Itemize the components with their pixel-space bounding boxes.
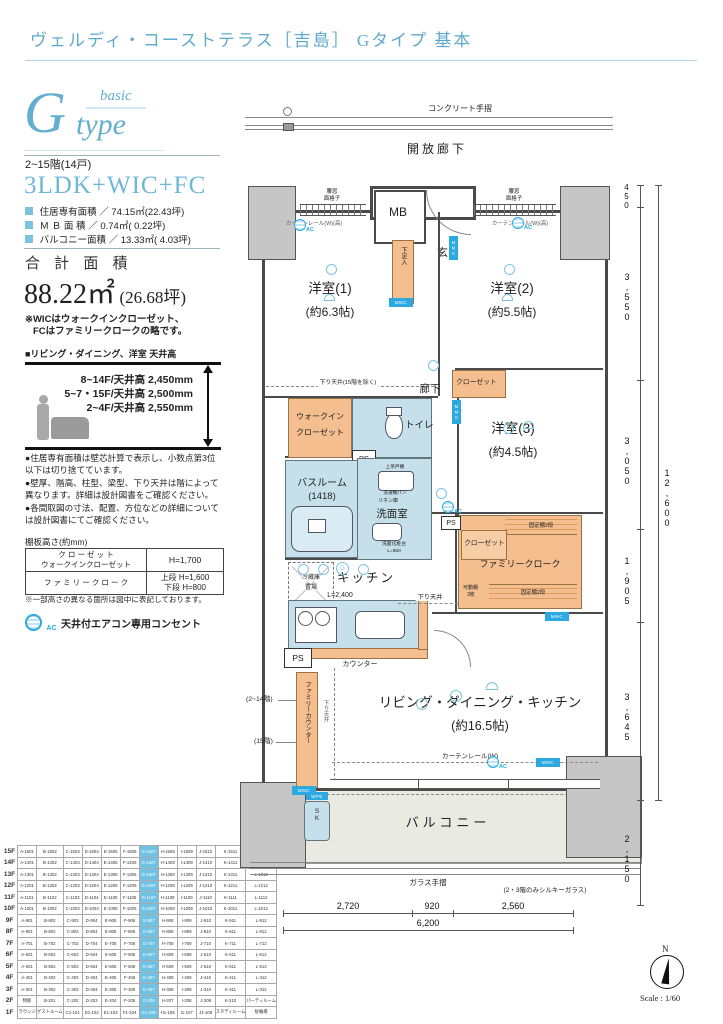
logo-type: type (76, 108, 126, 142)
unit-cell: I-1309 (177, 869, 196, 881)
unit-cell: K-711 (215, 938, 246, 950)
floor-label: 6F (2, 949, 18, 961)
unit-row: 15FA-1501B-1502C-1503D-1504E-1505F-1506G… (2, 846, 277, 858)
wic-note-line1: ※WICはウォークインクローゼット、 (25, 315, 184, 325)
fixed-shelf-bottom-label: 固定棚2段 (521, 591, 546, 596)
unit-cell: I-1509 (177, 846, 196, 858)
unit-cell: L-812 (246, 926, 277, 938)
area-row-2: Ｍ Ｂ 面 積 ／ 0.74㎡( 0.22坪) (25, 218, 165, 232)
unit-cell: ゲストルーム (37, 1007, 64, 1019)
toilet-label: トイレ (405, 421, 434, 431)
dim-line-bottom (283, 913, 574, 914)
unit-cell: L-1112 (246, 892, 277, 904)
arrow-up-icon (203, 365, 213, 373)
unit-cell: A-1201 (18, 880, 37, 892)
unit-cell: L-512 (246, 961, 277, 973)
ps-label: PS (446, 520, 455, 527)
unit-cell: G1-105 (139, 1007, 158, 1019)
ceiling-heading: ■リビング・ダイニング、洋室 天井高 (25, 350, 176, 359)
unit-cell: C-1003 (63, 903, 82, 915)
unit-cell: B-1302 (37, 869, 64, 881)
koshimado-label: 腰窓 (508, 190, 519, 196)
unit-cell: D-504 (82, 961, 101, 973)
wic-label-line2: クローゼット (296, 429, 344, 437)
unit-cell: G-907 (139, 915, 158, 927)
concrete-rail-line (245, 117, 613, 118)
glass-rail-line (250, 862, 640, 863)
unit-cell: B-502 (37, 961, 64, 973)
ldk-label: リビング・ダイニング・キッチン (379, 696, 582, 710)
unit-cell: A-901 (18, 915, 37, 927)
unit-cell: D-404 (82, 972, 101, 984)
unit-cell: H-408 (158, 972, 177, 984)
unit-cell: F-506 (120, 961, 139, 973)
shelf-caption: 棚板高さ(約mm) (25, 538, 87, 547)
closet-room3: クローゼット (461, 530, 507, 560)
ps-box: PS (441, 516, 461, 530)
scale-label: Scale : 1/60 (640, 994, 680, 1003)
unit-cell: D-804 (82, 926, 101, 938)
family-counter: ファミリーカウンター (296, 672, 318, 788)
ac-outlet: AC (294, 218, 314, 236)
family-counter-note2: (15階) (254, 739, 273, 746)
mmc-label: MMC (395, 300, 407, 305)
floor-label: 7F (2, 938, 18, 950)
mmc-label: MMC (454, 404, 459, 421)
dim-tick (655, 800, 662, 801)
unit-cell: H-808 (158, 926, 177, 938)
mmc-tag: MMC (536, 758, 560, 767)
unit-cell: C-503 (63, 961, 82, 973)
unit-cell: D-1104 (82, 892, 101, 904)
unit-cell: H-708 (158, 938, 177, 950)
unit-cell: E-1405 (101, 857, 120, 869)
unit-cell: H-207 (158, 995, 177, 1007)
unit-cell: E-905 (101, 915, 120, 927)
lowered-ceiling-note: 下り天井(15階を除く) (318, 381, 379, 387)
interior-wall (438, 212, 440, 396)
unit-row: 8FA-801B-802C-803D-804E-805F-806G-807H-8… (2, 926, 277, 938)
dim-tick (637, 207, 644, 208)
dim-right-3: 3,050 (622, 436, 632, 486)
shelf-label: ク ロ ー ゼ ッ ト (27, 550, 145, 560)
concrete-rail-label: コンクリート手摺 (428, 105, 492, 113)
ac-outlet-icon (25, 614, 42, 631)
total-area-label: 合 計 面 積 (25, 256, 133, 271)
unit-cell: G-307 (139, 984, 158, 996)
sink-icon (355, 611, 405, 639)
ac-outlet-icon (512, 217, 524, 229)
unit-row: 2F物販B-201C-202D-203E-204F-205G-206H-207I… (2, 995, 277, 1007)
unit-cell: C-903 (63, 915, 82, 927)
unit-cell: F-1306 (120, 869, 139, 881)
unit-cell: B-1102 (37, 892, 64, 904)
unit-cell: H-1308 (158, 869, 177, 881)
dim-tick (573, 910, 574, 917)
mmc-label: MMC (551, 614, 563, 619)
dim-right-total: 12,600 (662, 468, 672, 528)
g-outlet-label: G (340, 566, 345, 572)
burner-icon (315, 611, 330, 626)
floor-label: 1F (2, 1007, 18, 1019)
shelf-value: 下段 H=800 (148, 583, 222, 593)
unit-cell: I-1409 (177, 857, 196, 869)
note-3: ●各間取図の寸法、配置、方位などの詳細については設計図書にてご確認ください。 (25, 502, 223, 526)
slop-sink-label: SK (313, 808, 320, 822)
unit-cell: J-209 (196, 995, 215, 1007)
unit-cell: B-1402 (37, 857, 64, 869)
unit-cell: J-1410 (196, 857, 215, 869)
glass-rail-line (250, 868, 640, 869)
unit-cell: A-501 (18, 961, 37, 973)
lowered-ceiling-dashed-vertical (334, 668, 335, 786)
unit-cell: B-702 (37, 938, 64, 950)
window-grille-left (300, 204, 366, 216)
unit-row: 10FA-1001B-1002C-1003D-1004E-1005F-1006G… (2, 903, 277, 915)
floor-label: 11F (2, 892, 18, 904)
unit-cell: J-710 (196, 938, 215, 950)
dim-tick (453, 910, 454, 917)
person-silhouette-icon (39, 395, 48, 404)
area-row-1: 住居専有面積 ／ 74.15㎡(22.43坪) (25, 204, 184, 218)
unit-cell: L-1012 (246, 903, 277, 915)
walk-in-closet: ウォークイン クローゼット (288, 398, 352, 458)
toilet-tank-icon (386, 407, 402, 416)
unit-cell: I-909 (177, 915, 196, 927)
total-area-tsubo: (26.68坪) (119, 288, 186, 307)
unit-cell: F-1006 (120, 903, 139, 915)
leader-line (276, 742, 296, 743)
unit-cell: E-605 (101, 949, 120, 961)
shelf-label: フ ァ ミ リ ー ク ロ ー ク (26, 571, 147, 594)
area-row-3: バルコニー面積 ／ 13.33㎡( 4.03坪) (25, 232, 191, 246)
unit-cell: E-805 (101, 926, 120, 938)
floors-label: 2~15階(14戸) (25, 160, 91, 171)
total-area-value-row: 88.22㎡ (26.68坪) (24, 272, 186, 312)
floor-label: 2F (2, 995, 18, 1007)
unit-cell: A-801 (18, 926, 37, 938)
unit-cell: L-312 (246, 984, 277, 996)
dim-right-low: 2,150 (622, 834, 632, 884)
unit-cell: A-401 (18, 972, 37, 984)
dim-line-right (640, 185, 641, 905)
ac-text: AC (454, 509, 462, 515)
concrete-rail-line (245, 129, 613, 130)
unit-cell: G-1307 (139, 869, 158, 881)
room3-size: (約4.5帖) (489, 446, 538, 458)
area-value: 74.15㎡(22.43坪) (111, 207, 184, 218)
unit-cell: G-707 (139, 938, 158, 950)
bullet-square-icon (25, 235, 33, 243)
floor-label: 13F (2, 869, 18, 881)
unit-cell: B-602 (37, 949, 64, 961)
unit-cell: L-712 (246, 938, 277, 950)
floor-label: 15F (2, 846, 18, 858)
vanity-length: L=950 (387, 550, 400, 555)
unit-cell: G-607 (139, 949, 158, 961)
kitchen-length: L=2,400 (327, 592, 353, 599)
fridge-label-line1: 冷蔵庫 (302, 575, 320, 581)
unit-cell: J-1110 (196, 892, 215, 904)
unit-cell: K-411 (215, 972, 246, 984)
area-value: 0.74㎡( 0.22坪) (100, 221, 165, 232)
ac-text: AC (306, 227, 314, 233)
unit-cell: H-908 (158, 915, 177, 927)
dim-tick (637, 622, 644, 623)
unit-row: 6FA-601B-602C-603D-604E-605F-606G-607H-6… (2, 949, 277, 961)
unit-cell: A-1101 (18, 892, 37, 904)
dim-bottom-1: 2,720 (337, 901, 360, 911)
area-value: 13.33㎡( 4.03坪) (121, 235, 191, 246)
mmc-tag: MMC (389, 298, 413, 307)
unit-cell: J-810 (196, 926, 215, 938)
shelf-row: ク ロ ー ゼ ッ ト ウォークインクローゼット H=1,700 (26, 549, 224, 572)
ac-legend-text: 天井付エアコン専用コンセント (61, 619, 201, 630)
floor-label: 10F (2, 903, 18, 915)
unit-cell: G-1507 (139, 846, 158, 858)
logo-letter: G (24, 84, 66, 142)
bathroom-size: (1418) (308, 492, 335, 502)
unit-cell: F-306 (120, 984, 139, 996)
compass-icon (650, 955, 684, 989)
floor-label: 9F (2, 915, 18, 927)
toilet-room: トイレ (352, 398, 432, 458)
unit-cell: F-706 (120, 938, 139, 950)
counter-strip-side (418, 600, 428, 650)
dim-right-5: 3,645 (622, 692, 632, 742)
ceiling-symbol-icon (523, 421, 534, 429)
washroom-label: 洗面室 (376, 509, 408, 520)
rail-base-icon (283, 123, 294, 131)
ceiling-symbol-icon (326, 264, 337, 275)
wic-note-line2: FCはファミリークロークの略です。 (33, 327, 187, 337)
shoe-cabinet: 下足入 (392, 240, 414, 304)
unit-cell: C-1203 (63, 880, 82, 892)
closet-label: クローゼット (464, 541, 505, 548)
bathroom: バスルーム (1418) (285, 460, 359, 558)
bullet-square-icon (25, 207, 33, 215)
unit-cell: E-1305 (101, 869, 120, 881)
unit-cell: B-1502 (37, 846, 64, 858)
unit-cell: I-509 (177, 961, 196, 973)
unit-cell: D-203 (82, 995, 101, 1007)
bath-controls-icon (308, 519, 326, 533)
unit-cell: F1-104 (120, 1007, 139, 1019)
floor-label: 5F (2, 961, 18, 973)
family-cloak-label: ファミリークローク (479, 560, 560, 569)
unit-cell: H-1208 (158, 880, 177, 892)
unit-row: 1FラウンジゲストルームC1-101D1-102E1-103F1-104G1-1… (2, 1007, 277, 1019)
unit-cell: 物販 (18, 995, 37, 1007)
area-label: バルコニー面積 ／ (40, 235, 118, 246)
unit-cell: L-1212 (246, 880, 277, 892)
interior-wall (432, 612, 603, 614)
floor-label: 4F (2, 972, 18, 984)
unit-cell: パーティルーム (246, 995, 277, 1007)
ceiling-symbol-icon (358, 564, 369, 575)
unit-cell: I-809 (177, 926, 196, 938)
unit-cell: F-1506 (120, 846, 139, 858)
shelf-value: 上段 H=1,600 (148, 573, 222, 583)
unit-cell: D-1004 (82, 903, 101, 915)
unit-cell: C-403 (63, 972, 82, 984)
unit-cell: F-606 (120, 949, 139, 961)
ceiling-line-1: 8~14F/天井高 2,450mm (81, 375, 193, 386)
unit-cell: H-608 (158, 949, 177, 961)
summary-divider-top (24, 155, 220, 156)
movable-shelf-label2: 3枚 (467, 593, 475, 598)
glass-rail-label: ガラス手摺 (409, 879, 446, 887)
ac-text: AC (524, 225, 532, 231)
unit-cell: K-311 (215, 984, 246, 996)
unit-row: 13FA-1301B-1302C-1303D-1304E-1305F-1306G… (2, 869, 277, 881)
title-underline (25, 60, 697, 61)
unit-cell: A-601 (18, 949, 37, 961)
unit-cell: C-1303 (63, 869, 82, 881)
note-1: ●住居専有面積は壁芯計算で表示し、小数点第3位以下は切り捨てています。 (25, 452, 223, 476)
washer-pan-label: 洗濯機パン (383, 491, 406, 496)
unit-cell: F-1406 (120, 857, 139, 869)
area-label: Ｍ Ｂ 面 積 ／ (40, 221, 98, 232)
area-label: 住居専有面積 ／ (40, 207, 109, 218)
unit-cell: H-308 (158, 984, 177, 996)
note-2: ●壁厚、階高、柱型、梁型、下り天井は階によって異なります。詳細は設計図書をご確認… (25, 477, 223, 501)
unit-cell: D-704 (82, 938, 101, 950)
dim-tick (283, 910, 284, 917)
floor-label: 3F (2, 984, 18, 996)
concrete-rail-line (245, 125, 613, 126)
dim-tick (655, 185, 662, 186)
unit-row: 12FA-1201B-1202C-1203D-1204E-1205F-1206G… (2, 880, 277, 892)
unit-cell: H-1508 (158, 846, 177, 858)
dim-tick (283, 927, 284, 934)
dim-tick (637, 905, 644, 906)
unit-cell: F-806 (120, 926, 139, 938)
shelf-table: ク ロ ー ゼ ッ ト ウォークインクローゼット H=1,700 フ ァ ミ リ… (25, 548, 224, 595)
dim-right-2: 3,550 (622, 272, 632, 322)
unit-cell: K-611 (215, 949, 246, 961)
unit-cell: B-402 (37, 972, 64, 984)
unit-cell: K-1311 (215, 869, 246, 881)
dim-tick (637, 185, 644, 186)
dim-right-1: 450 (622, 183, 631, 210)
shoe-cabinet-label: 下足入 (399, 247, 408, 265)
unit-cell: E-204 (101, 995, 120, 1007)
unit-cell: J-1510 (196, 846, 215, 858)
unit-cell: G-807 (139, 926, 158, 938)
unit-cell: D-604 (82, 949, 101, 961)
bathroom-label: バスルーム (297, 479, 347, 489)
unit-cell: H-508 (158, 961, 177, 973)
room2-size: (約5.5帖) (488, 306, 537, 318)
unit-cell: C-303 (63, 984, 82, 996)
unit-row: 4FA-401B-402C-403D-404E-405F-406G-407H-4… (2, 972, 277, 984)
unit-cell: J-1210 (196, 880, 215, 892)
unit-cell: E-305 (101, 984, 120, 996)
floor-label: 12F (2, 880, 18, 892)
compass-needle-icon (661, 958, 673, 985)
unit-cell: J-1010 (196, 903, 215, 915)
unit-cell: L-912 (246, 915, 277, 927)
unit-row: 9FA-901B-902C-903D-904E-905F-906G-907H-9… (2, 915, 277, 927)
ceiling-line-3: 2~4F/天井高 2,550mm (86, 403, 193, 414)
unit-cell: G-206 (139, 995, 158, 1007)
unit-cell: J-910 (196, 915, 215, 927)
unit-row: 3FA-301B-302C-303D-304E-305F-306G-307H-3… (2, 984, 277, 996)
ceiling-symbol-icon (324, 294, 335, 301)
unit-cell: F-205 (120, 995, 139, 1007)
unit-cell: E-1105 (101, 892, 120, 904)
washer-pan-icon (378, 471, 414, 491)
unit-row: 5FA-501B-502C-503D-504E-505F-506G-507H-5… (2, 961, 277, 973)
open-corridor-label: 開放廊下 (407, 143, 467, 155)
ac-outlet: AC (442, 500, 462, 518)
unit-cell: E-1505 (101, 846, 120, 858)
sliding-window (330, 779, 600, 789)
arrow-down-icon (203, 439, 213, 447)
ac-text: AC (499, 764, 507, 770)
cupboard-label: 上吊戸棚 (386, 465, 404, 470)
mb-label: MB (389, 206, 407, 218)
lowered-ceiling-dashed (398, 603, 458, 604)
unit-row: 14FA-1401B-1402C-1403D-1404E-1405F-1406G… (2, 857, 277, 869)
unit-cell: B-302 (37, 984, 64, 996)
unit-cell: D1-102 (82, 1007, 101, 1019)
window-grille-right (474, 204, 556, 216)
mmc-tag: MMC (452, 400, 461, 424)
floor-label: 8F (2, 926, 18, 938)
unit-cell: C-1503 (63, 846, 82, 858)
unit-cell: I-409 (177, 972, 196, 984)
ac-outlet: AC (487, 755, 507, 773)
shelf-note: ※一部高さの異なる箇所は図中に表記しております。 (25, 596, 206, 604)
unit-cell: B-201 (37, 995, 64, 1007)
floor-label: 14F (2, 857, 18, 869)
ac-legend: AC 天井付エアコン専用コンセント (25, 614, 201, 632)
koshimado-label: 腰窓 (326, 190, 337, 196)
rail-post-icon (283, 107, 292, 116)
unit-cell: 駐輪場 (246, 1007, 277, 1019)
bullet-square-icon (25, 221, 33, 229)
ceiling-symbol-icon (503, 423, 514, 434)
unit-cell: I-709 (177, 938, 196, 950)
ceiling-symbol-icon (416, 698, 428, 710)
kitchen-counter (288, 600, 420, 650)
unit-cell: K-811 (215, 926, 246, 938)
leader-line (278, 700, 296, 701)
window-mullion (418, 780, 419, 788)
linen-label: リネン庫 (378, 499, 398, 504)
unit-cell: A-301 (18, 984, 37, 996)
ceiling-symbol-icon (504, 264, 515, 275)
ac-outlet-icon (487, 756, 499, 768)
grille-label: 面格子 (324, 197, 341, 203)
dim-tick (637, 529, 644, 530)
unit-cell: I-609 (177, 949, 196, 961)
unit-cell: D-904 (82, 915, 101, 927)
unit-cell: G-1107 (139, 892, 158, 904)
unit-cell: C-803 (63, 926, 82, 938)
movable-shelf-label1: 可動棚 (463, 586, 478, 591)
unit-cell: B-902 (37, 915, 64, 927)
unit-cell: K-1211 (215, 880, 246, 892)
unit-cell: F-1206 (120, 880, 139, 892)
ceiling-symbol-icon (486, 682, 498, 690)
sofa-icon (51, 417, 89, 439)
dim-line-right-total (658, 185, 659, 800)
unit-cell: E-705 (101, 938, 120, 950)
lowered-ceiling-label: 下り天井 (416, 595, 445, 601)
